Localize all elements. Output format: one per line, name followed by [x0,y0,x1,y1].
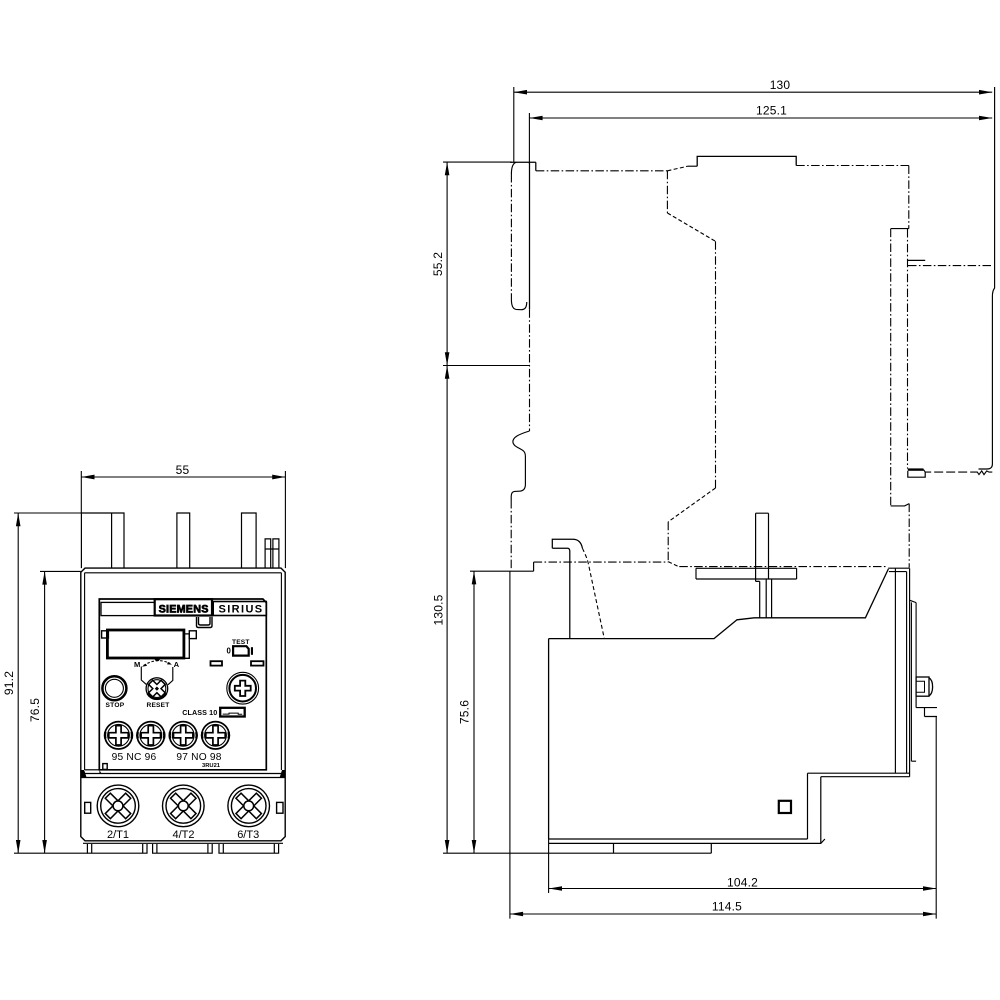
svg-text:STOP: STOP [105,702,124,709]
svg-text:76.5: 76.5 [28,698,42,722]
svg-text:6/T3: 6/T3 [237,829,259,841]
svg-text:M: M [134,660,140,669]
svg-text:4/T2: 4/T2 [172,829,194,841]
svg-text:97 NO 98: 97 NO 98 [176,752,221,763]
svg-text:104.2: 104.2 [727,875,758,889]
svg-text:55.2: 55.2 [431,252,445,276]
svg-text:55: 55 [176,463,190,477]
svg-text:114.5: 114.5 [712,899,742,913]
svg-text:75.6: 75.6 [458,700,472,724]
svg-text:SIEMENS: SIEMENS [159,603,209,615]
svg-text:0: 0 [227,646,232,655]
svg-text:125.1: 125.1 [756,104,787,118]
svg-text:CLASS 10: CLASS 10 [182,708,217,717]
svg-text:2/T1: 2/T1 [107,829,129,841]
svg-text:RESET: RESET [147,702,170,709]
svg-text:95 NC 96: 95 NC 96 [112,752,157,763]
svg-text:TEST: TEST [232,639,250,646]
svg-text:SIRIUS: SIRIUS [218,604,263,616]
svg-text:A: A [174,660,180,669]
svg-text:3RU21: 3RU21 [202,763,221,769]
svg-text:130: 130 [770,78,791,92]
svg-text:130.5: 130.5 [432,594,446,625]
svg-text:91.2: 91.2 [2,671,16,695]
